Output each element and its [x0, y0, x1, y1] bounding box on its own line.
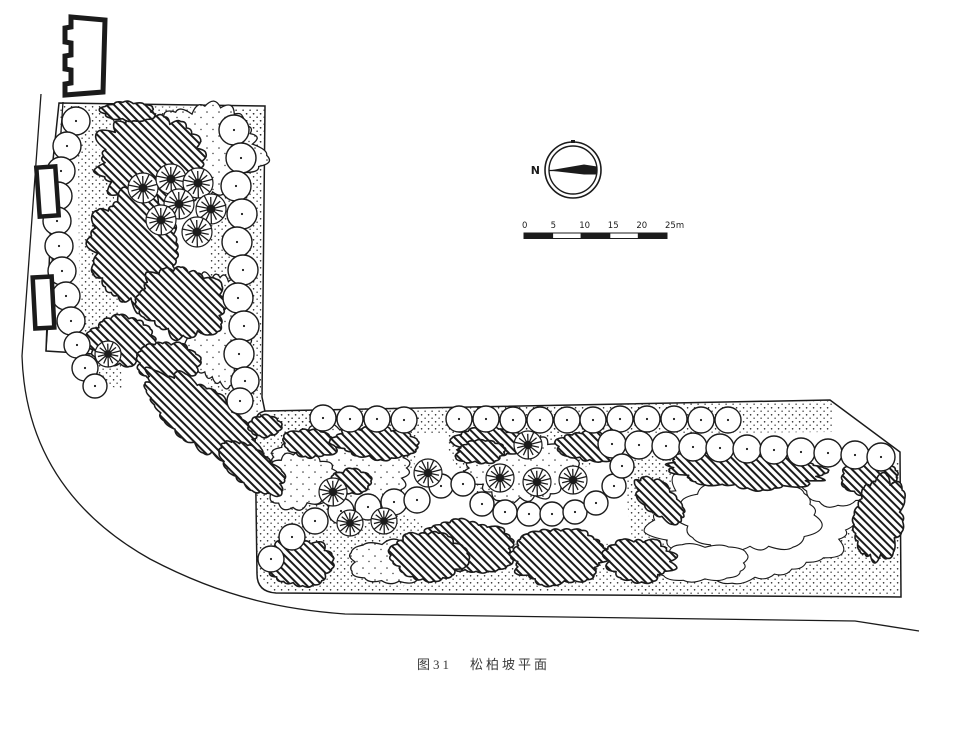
site-plan-drawing: N 0 5 10 15 20 25m: [0, 0, 967, 740]
deciduous-tree: [310, 405, 336, 431]
deciduous-tree: [57, 307, 85, 335]
conifer-tree: [371, 508, 397, 534]
deciduous-tree: [226, 143, 256, 173]
deciduous-tree: [733, 435, 761, 463]
scale-segment: [610, 233, 639, 239]
conifer-tree: [486, 464, 514, 492]
deciduous-tree: [517, 502, 541, 526]
deciduous-tree: [224, 339, 254, 369]
conifer-tree: [514, 431, 542, 459]
scale-segment: [524, 233, 553, 239]
deciduous-tree: [814, 439, 842, 467]
deciduous-tree: [652, 432, 680, 460]
deciduous-tree: [470, 492, 494, 516]
deciduous-tree: [53, 132, 81, 160]
deciduous-tree: [52, 282, 80, 310]
deciduous-tree: [337, 406, 363, 432]
scale-bar-segments: [524, 233, 667, 239]
compass-top-tick: [571, 140, 575, 143]
deciduous-tree: [364, 406, 390, 432]
scale-tick-label: 0: [522, 221, 527, 231]
deciduous-tree: [258, 546, 284, 572]
conifer-tree: [146, 205, 176, 235]
deciduous-tree: [500, 407, 526, 433]
conifer-tree: [182, 217, 212, 247]
conifer-tree: [337, 510, 363, 536]
figure-number: 图31: [417, 657, 452, 672]
deciduous-tree: [527, 407, 553, 433]
figure-title: 松柏坡平面: [470, 657, 550, 672]
deciduous-tree: [787, 438, 815, 466]
north-compass: N: [531, 140, 601, 198]
conifer-tree: [319, 478, 347, 506]
building-footprint: [65, 17, 105, 95]
deciduous-tree: [661, 406, 687, 432]
deciduous-tree: [83, 374, 107, 398]
scale-segment: [638, 233, 667, 239]
conifer-tree: [414, 459, 442, 487]
deciduous-tree: [227, 388, 253, 414]
deciduous-tree: [45, 232, 73, 260]
deciduous-tree: [607, 406, 633, 432]
deciduous-tree: [62, 107, 90, 135]
scale-tick-label: 5: [551, 221, 556, 231]
deciduous-tree: [279, 524, 305, 550]
deciduous-tree: [473, 406, 499, 432]
deciduous-tree: [221, 171, 251, 201]
deciduous-tree: [451, 472, 475, 496]
shrub-mass: [248, 414, 282, 437]
scale-segment: [581, 233, 610, 239]
deciduous-tree: [867, 443, 895, 471]
scale-tick-label: 20: [636, 221, 647, 231]
deciduous-tree: [679, 433, 707, 461]
deciduous-tree: [223, 283, 253, 313]
deciduous-tree: [584, 491, 608, 515]
deciduous-tree: [404, 487, 430, 513]
conifer-tree: [523, 468, 551, 496]
structure-footprint: [33, 277, 55, 329]
deciduous-tree: [706, 434, 734, 462]
north-label: N: [531, 164, 540, 177]
deciduous-tree: [219, 115, 249, 145]
deciduous-tree: [554, 407, 580, 433]
deciduous-tree: [391, 407, 417, 433]
deciduous-tree: [760, 436, 788, 464]
deciduous-tree: [302, 508, 328, 534]
deciduous-tree: [227, 199, 257, 229]
scale-bar-labels: 0 5 10 15 20 25m: [522, 221, 684, 231]
scale-segment: [553, 233, 582, 239]
north-needle-icon: [549, 165, 597, 175]
deciduous-tree: [222, 227, 252, 257]
scale-bar: 0 5 10 15 20 25m: [522, 221, 684, 239]
deciduous-tree: [841, 441, 869, 469]
deciduous-tree: [228, 255, 258, 285]
deciduous-tree: [493, 500, 517, 524]
deciduous-tree: [540, 502, 564, 526]
structure-footprint: [36, 166, 58, 216]
conifer-tree: [559, 466, 587, 494]
scale-tick-label: 10: [579, 221, 590, 231]
scale-tick-label: 15: [608, 221, 619, 231]
conifer-tree: [95, 341, 121, 367]
deciduous-tree: [610, 454, 634, 478]
deciduous-tree: [229, 311, 259, 341]
deciduous-tree: [64, 332, 90, 358]
deciduous-tree: [715, 407, 741, 433]
deciduous-tree: [634, 406, 660, 432]
deciduous-tree: [446, 406, 472, 432]
figure-caption: 图31松柏坡平面: [0, 654, 967, 673]
deciduous-tree: [580, 407, 606, 433]
deciduous-tree: [688, 407, 714, 433]
conifer-tree: [128, 173, 158, 203]
scale-tick-label: 25m: [665, 221, 684, 231]
plan-artwork: [22, 17, 919, 631]
deciduous-tree: [625, 431, 653, 459]
